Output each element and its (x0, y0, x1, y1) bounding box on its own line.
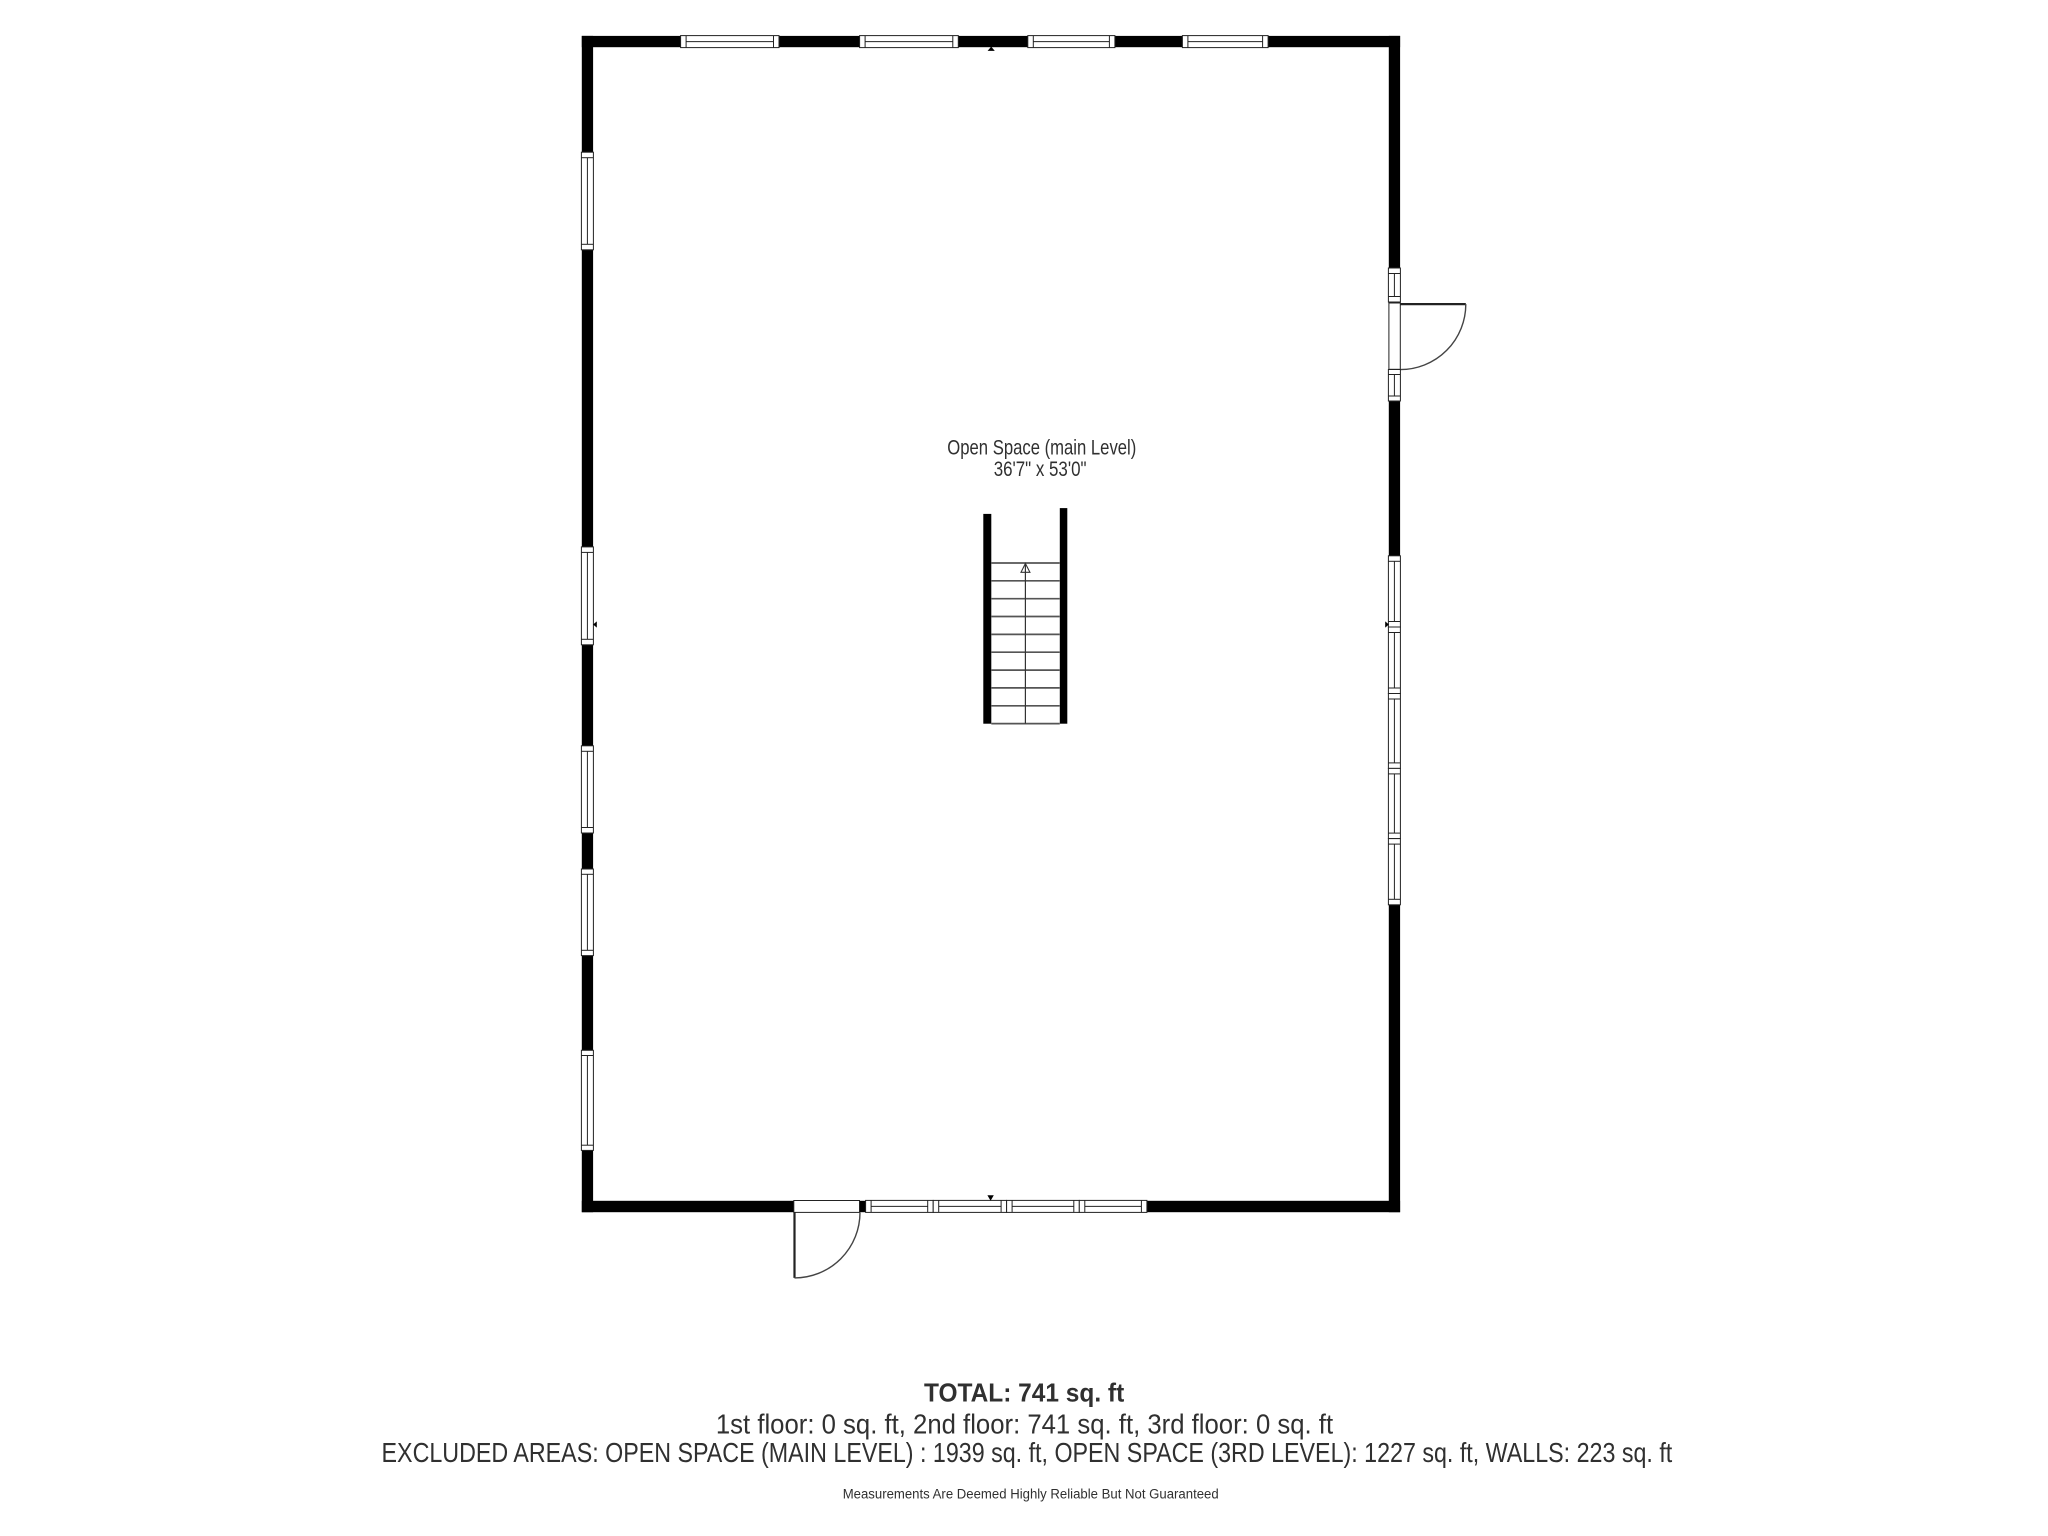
svg-text:36'7" x 53'0": 36'7" x 53'0" (994, 457, 1087, 481)
svg-text:Open Space (main Level): Open Space (main Level) (947, 435, 1136, 459)
svg-text:TOTAL: 741 sq. ft: TOTAL: 741 sq. ft (924, 1377, 1125, 1407)
svg-text:EXCLUDED AREAS: OPEN SPACE (MA: EXCLUDED AREAS: OPEN SPACE (MAIN LEVEL) … (382, 1437, 1673, 1468)
svg-text:1st floor: 0 sq. ft, 2nd floor: 1st floor: 0 sq. ft, 2nd floor: 741 sq. … (716, 1408, 1333, 1439)
svg-text:Measurements Are Deemed Highly: Measurements Are Deemed Highly Reliable … (843, 1487, 1219, 1502)
